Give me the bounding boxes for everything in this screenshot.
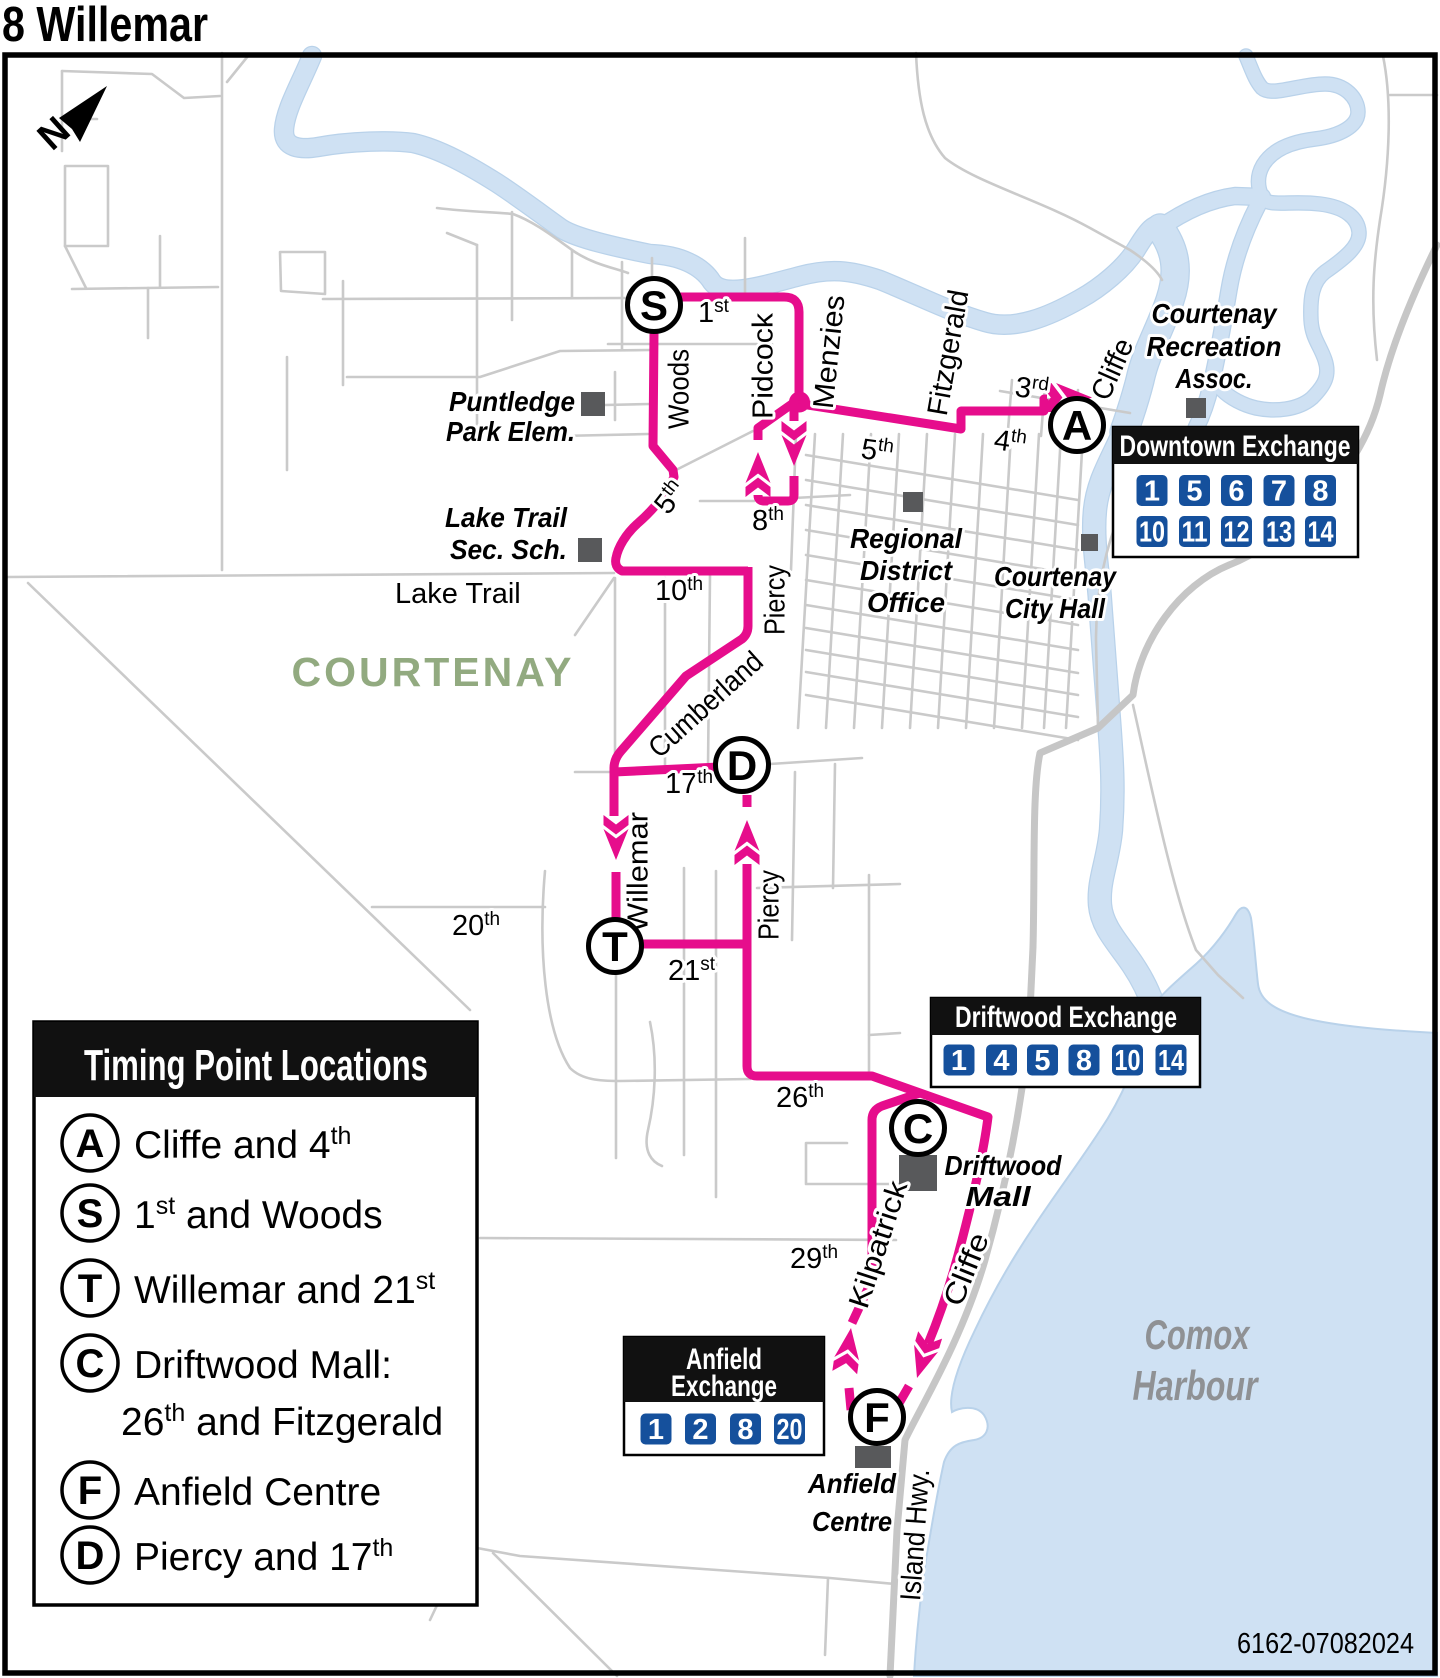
svg-text:20: 20 (777, 1414, 803, 1446)
svg-text:Sec. Sch.: Sec. Sch. (450, 534, 567, 565)
svg-text:Lake Trail: Lake Trail (395, 578, 521, 610)
svg-text:T: T (602, 923, 628, 970)
svg-text:8 Willemar: 8 Willemar (2, 0, 208, 52)
svg-text:Park Elem.: Park Elem. (446, 416, 575, 447)
svg-text:A: A (1062, 402, 1092, 449)
svg-text:Lake Trail: Lake Trail (445, 502, 568, 533)
svg-text:City Hall: City Hall (1005, 593, 1106, 624)
svg-text:D: D (76, 1534, 105, 1578)
svg-text:Harbour: Harbour (1133, 1362, 1260, 1409)
svg-text:4: 4 (993, 1045, 1009, 1077)
svg-text:7: 7 (1271, 476, 1287, 508)
svg-text:5: 5 (1186, 476, 1202, 508)
svg-text:Piercy: Piercy (754, 870, 786, 940)
svg-text:Anfield: Anfield (807, 1468, 897, 1499)
svg-text:2: 2 (692, 1414, 708, 1446)
svg-text:Office: Office (867, 587, 945, 618)
svg-text:F: F (78, 1469, 102, 1513)
svg-text:1: 1 (648, 1414, 664, 1446)
svg-text:10: 10 (1139, 517, 1165, 549)
svg-text:1: 1 (1144, 476, 1160, 508)
svg-text:14: 14 (1158, 1045, 1184, 1077)
svg-text:Willemar and 21st: Willemar and 21st (134, 1267, 435, 1312)
svg-text:Anfield Centre: Anfield Centre (134, 1471, 381, 1514)
svg-text:Courtenay: Courtenay (994, 561, 1117, 592)
svg-text:D: D (727, 742, 757, 789)
svg-text:S: S (640, 282, 668, 329)
svg-text:Cliffe and 4th: Cliffe and 4th (134, 1122, 351, 1167)
svg-text:12: 12 (1224, 517, 1250, 549)
svg-text:Courtenay: Courtenay (1152, 298, 1278, 329)
svg-text:C: C (76, 1342, 105, 1386)
svg-text:District: District (860, 555, 954, 586)
svg-text:C: C (903, 1105, 933, 1152)
svg-text:Piercy and 17th: Piercy and 17th (134, 1534, 393, 1579)
svg-text:1: 1 (951, 1045, 967, 1077)
svg-text:T: T (78, 1267, 102, 1311)
svg-text:8: 8 (1076, 1045, 1092, 1077)
svg-text:Mall: Mall (966, 1181, 1032, 1212)
svg-text:Regional: Regional (850, 523, 963, 554)
svg-text:14: 14 (1308, 517, 1334, 549)
svg-text:Timing Point Locations: Timing Point Locations (84, 1041, 428, 1090)
svg-text:5: 5 (1034, 1045, 1050, 1077)
svg-text:13: 13 (1266, 517, 1292, 549)
svg-text:Downtown Exchange: Downtown Exchange (1120, 430, 1351, 463)
svg-text:8: 8 (737, 1414, 753, 1446)
svg-text:6: 6 (1228, 476, 1244, 508)
svg-text:10: 10 (1115, 1045, 1141, 1077)
svg-text:11: 11 (1182, 517, 1208, 549)
svg-text:F: F (864, 1394, 890, 1441)
svg-text:Centre: Centre (812, 1506, 892, 1537)
svg-text:S: S (77, 1192, 104, 1236)
svg-text:Comox: Comox (1145, 1311, 1251, 1358)
svg-text:Recreation: Recreation (1147, 331, 1282, 362)
svg-text:Willemar: Willemar (623, 812, 655, 932)
svg-text:Pidcock: Pidcock (748, 312, 780, 419)
svg-text:Puntledge: Puntledge (449, 386, 575, 417)
svg-text:6162-07082024: 6162-07082024 (1237, 1628, 1414, 1660)
svg-text:Exchange: Exchange (671, 1370, 777, 1403)
svg-text:Piercy: Piercy (760, 565, 792, 635)
svg-text:A: A (76, 1122, 105, 1166)
svg-text:8: 8 (1312, 476, 1328, 508)
svg-text:Driftwood: Driftwood (945, 1150, 1063, 1181)
svg-text:Driftwood Exchange: Driftwood Exchange (955, 1001, 1177, 1034)
svg-text:Woods: Woods (664, 349, 696, 429)
svg-text:Assoc.: Assoc. (1175, 363, 1253, 394)
svg-text:COURTENAY: COURTENAY (292, 649, 575, 695)
svg-text:Driftwood Mall:: Driftwood Mall: (134, 1344, 392, 1387)
